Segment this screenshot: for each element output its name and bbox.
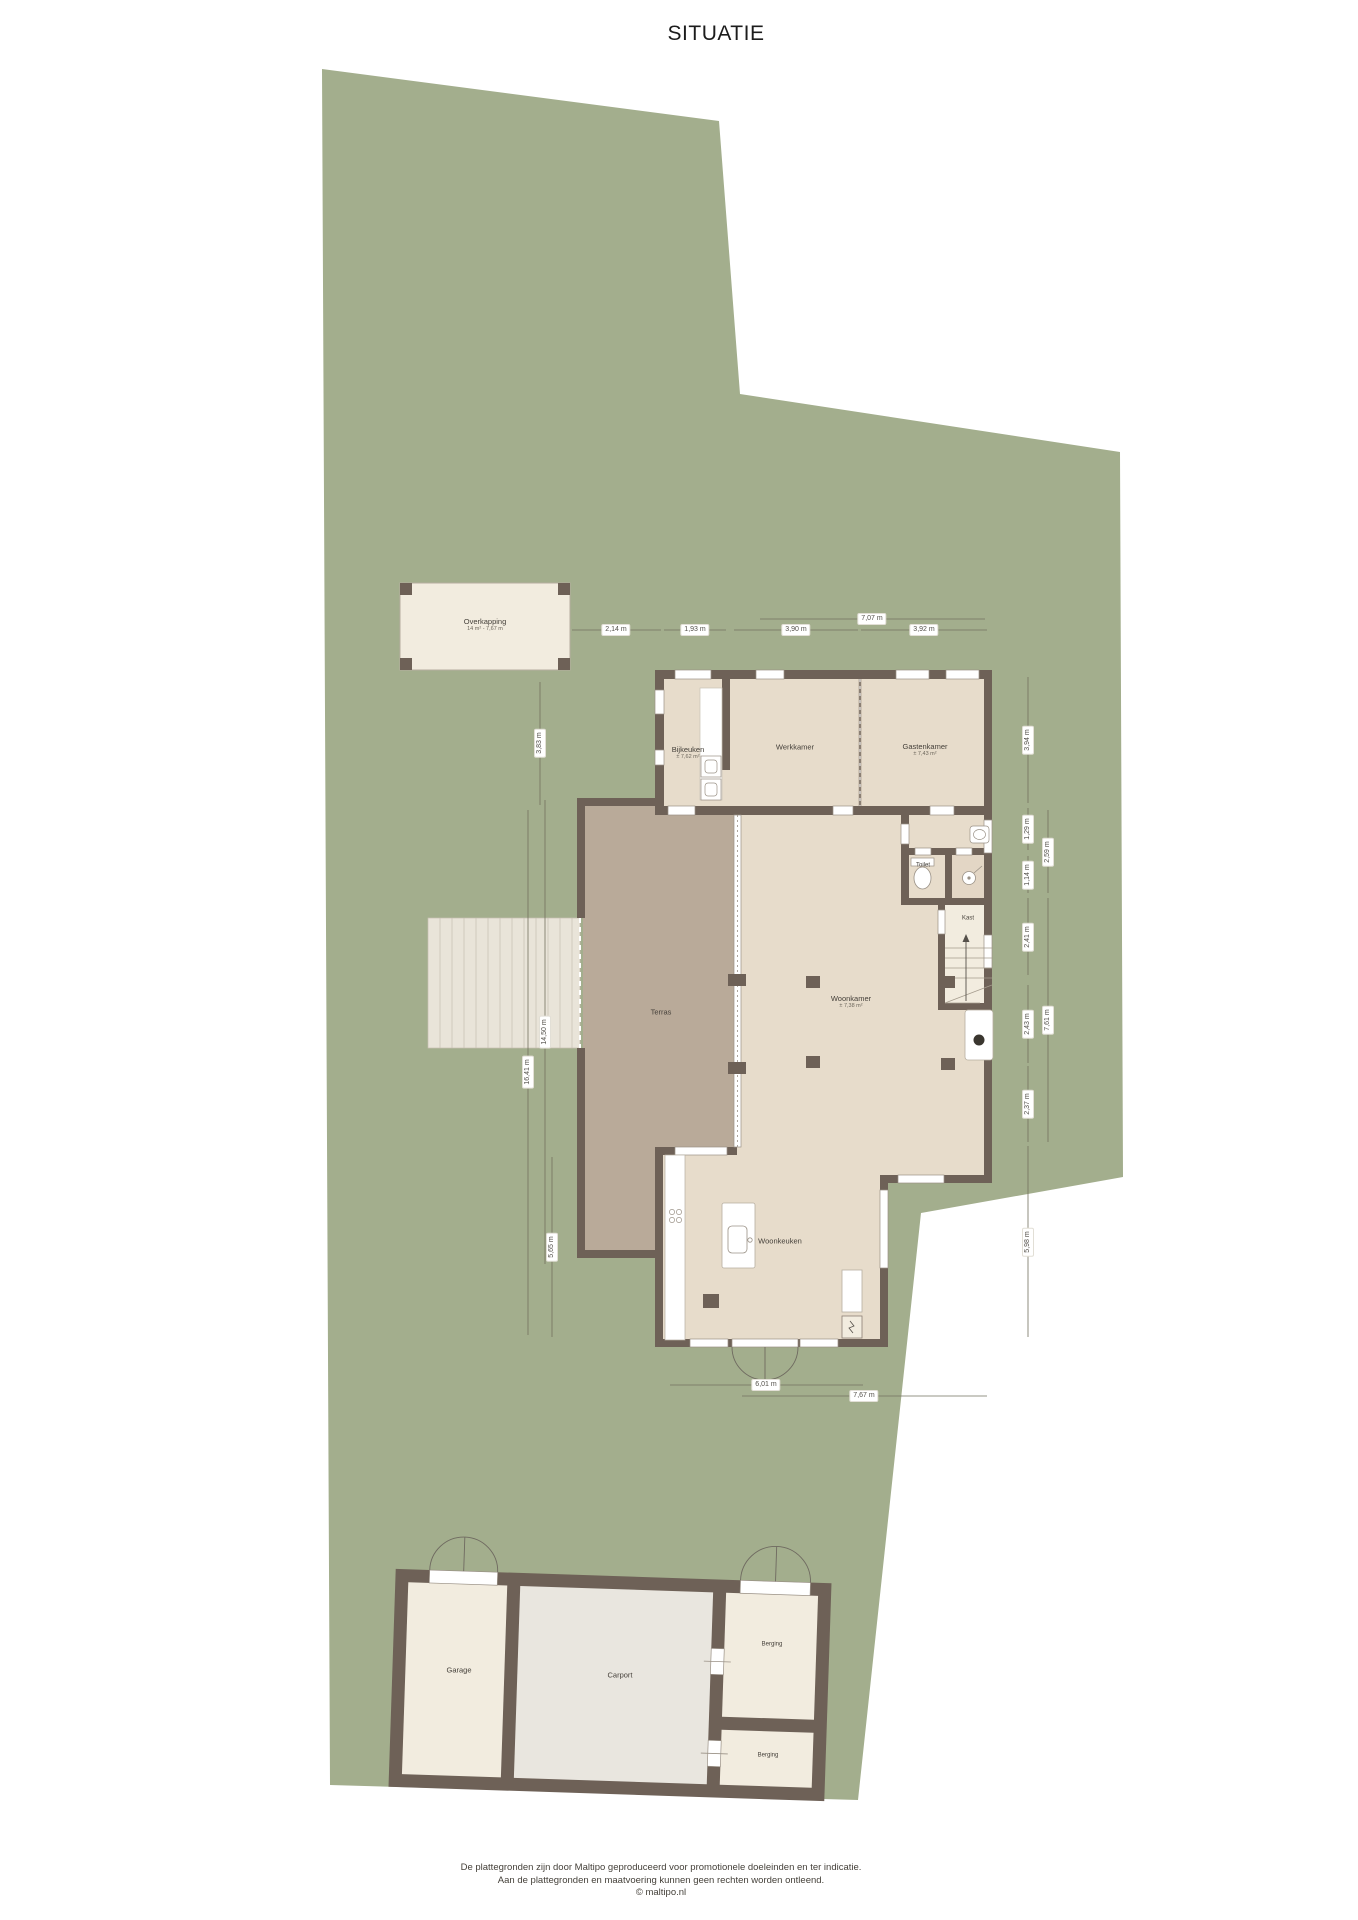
dim-top-2: 1,93 m bbox=[680, 624, 709, 636]
situatie-floorplan-page: SITUATIE bbox=[0, 0, 1358, 1920]
deck-steps bbox=[428, 918, 580, 1048]
carport-name: Carport bbox=[607, 1670, 632, 1679]
dim-right-5: 2,43 m bbox=[1022, 1009, 1034, 1038]
room-label-woonkamer: Woonkamer ± 7,38 m² bbox=[831, 994, 871, 1010]
room-label-bijkeuken: Bijkeuken ± 7,62 m² bbox=[672, 745, 705, 761]
footer-line-2: Aan de plattegronden en maatvoering kunn… bbox=[461, 1875, 862, 1888]
dim-bottom-0: 6,01 m bbox=[751, 1379, 780, 1391]
garage-name: Garage bbox=[446, 1665, 471, 1674]
room-label-berging-boven: Berging bbox=[762, 1641, 783, 1649]
overkapping-size: 14 m² - 7,67 m bbox=[464, 626, 507, 633]
woonkamer-size: ± 7,38 m² bbox=[831, 1003, 871, 1010]
room-label-werkkamer: Werkkamer bbox=[776, 742, 814, 751]
dim-right-4: 2,41 m bbox=[1022, 922, 1034, 951]
room-label-gastenkamer: Gastenkamer ± 7,43 m² bbox=[902, 742, 947, 758]
dim-right-1: 1,29 m bbox=[1022, 814, 1034, 843]
dim-left-2: 14,50 m bbox=[539, 1015, 551, 1048]
dim-right-6: 7,61 m bbox=[1042, 1005, 1054, 1034]
site-plan-svg bbox=[0, 0, 1358, 1920]
room-label-overkapping: Overkapping 14 m² - 7,67 m bbox=[464, 617, 507, 633]
gastenkamer-size: ± 7,43 m² bbox=[902, 751, 947, 758]
berging-boven-name: Berging bbox=[762, 1641, 783, 1647]
dim-right-8: 5,98 m bbox=[1022, 1227, 1034, 1256]
footer-disclaimer: De plattegronden zijn door Maltipo gepro… bbox=[461, 1862, 862, 1900]
dim-left-3: 5,65 m bbox=[546, 1232, 558, 1261]
room-label-garage: Garage bbox=[446, 1665, 471, 1674]
room-label-carport: Carport bbox=[607, 1670, 632, 1679]
dim-right-7: 2,37 m bbox=[1022, 1089, 1034, 1118]
gastenkamer-name: Gastenkamer bbox=[902, 742, 947, 751]
terras-name: Terras bbox=[651, 1007, 672, 1016]
bijkeuken-size: ± 7,62 m² bbox=[672, 754, 705, 761]
dim-top-0: 7,07 m bbox=[857, 613, 886, 625]
dim-top-4: 3,92 m bbox=[909, 624, 938, 636]
room-label-berging-onder: Berging bbox=[758, 1752, 779, 1760]
dim-left-1: 16,41 m bbox=[522, 1055, 534, 1088]
dim-right-2: 2,59 m bbox=[1042, 837, 1054, 866]
berging-onder-name: Berging bbox=[758, 1752, 779, 1758]
stove bbox=[965, 1010, 993, 1060]
footer-line-1: De plattegronden zijn door Maltipo gepro… bbox=[461, 1862, 862, 1875]
dim-right-0: 3,94 m bbox=[1022, 725, 1034, 754]
dim-left-0: 3,83 m bbox=[534, 728, 546, 757]
room-label-woonkeuken: Woonkeuken bbox=[758, 1236, 802, 1245]
dim-top-1: 2,14 m bbox=[601, 624, 630, 636]
room-label-terras: Terras bbox=[651, 1007, 672, 1016]
bijkeuken-name: Bijkeuken bbox=[672, 745, 705, 754]
room-label-toilet: Toilet bbox=[916, 862, 930, 870]
dim-top-3: 3,90 m bbox=[781, 624, 810, 636]
woonkeuken-name: Woonkeuken bbox=[758, 1236, 802, 1245]
dim-bottom-1: 7,67 m bbox=[849, 1390, 878, 1402]
werkkamer-name: Werkkamer bbox=[776, 742, 814, 751]
woonkamer-name: Woonkamer bbox=[831, 994, 871, 1003]
dim-right-3: 1,14 m bbox=[1022, 860, 1034, 889]
room-label-kast: Kast bbox=[962, 915, 974, 923]
overkapping-name: Overkapping bbox=[464, 617, 507, 626]
kast-name: Kast bbox=[962, 915, 974, 921]
footer-line-3: © maltipo.nl bbox=[461, 1887, 862, 1900]
toilet-name: Toilet bbox=[916, 862, 930, 868]
